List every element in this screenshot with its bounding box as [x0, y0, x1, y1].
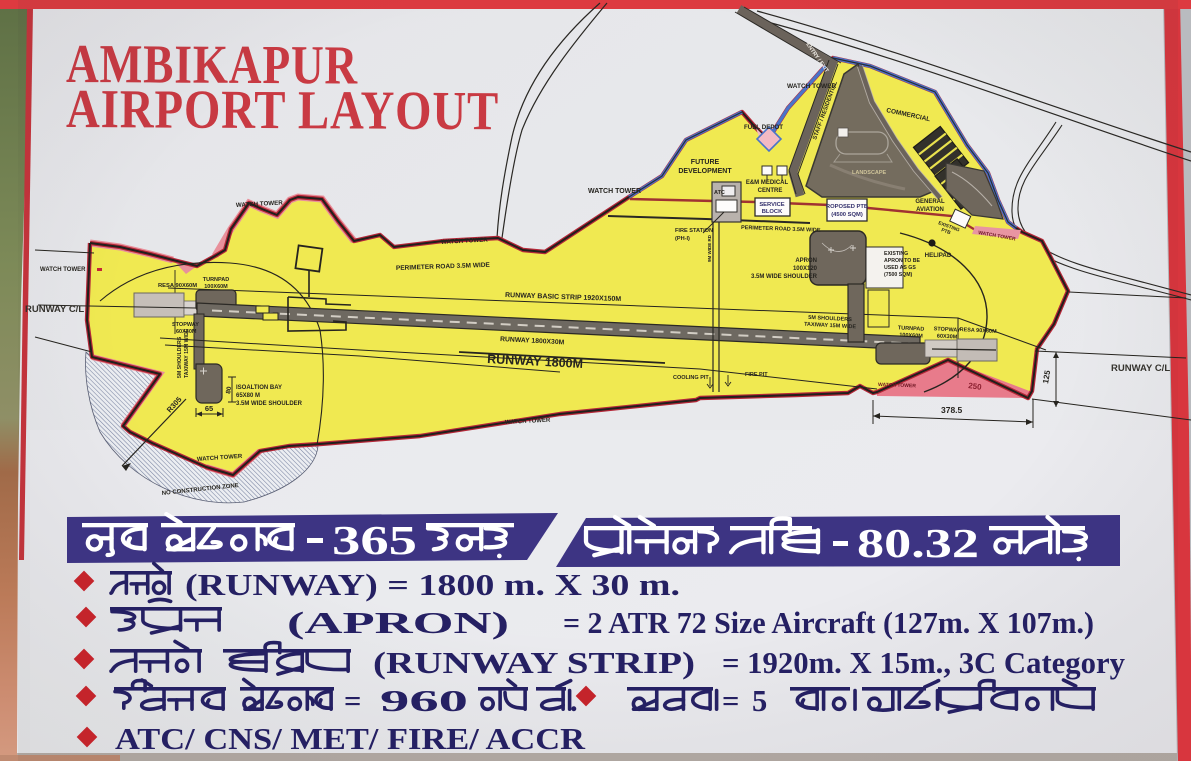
svg-text:(APRON): (APRON): [287, 606, 509, 640]
svg-text:.: .: [570, 684, 578, 718]
svg-text:960: 960: [380, 684, 468, 718]
svg-text:=: =: [344, 684, 361, 718]
svg-text:ATC/ CNS/ MET/ FIRE/ ACCR: ATC/ CNS/ MET/ FIRE/ ACCR: [115, 722, 586, 756]
svg-text:365: 365: [332, 517, 417, 563]
svg-text:5: 5: [752, 684, 767, 718]
svg-text:80.32: 80.32: [857, 520, 979, 566]
svg-text:= 1920m. X 15m., 3C Category: = 1920m. X 15m., 3C Category: [722, 646, 1125, 680]
svg-text:(RUNWAY STRIP): (RUNWAY STRIP): [373, 646, 695, 680]
svg-text:=: =: [722, 684, 739, 718]
svg-text:(RUNWAY) = 1800 m. X 30 m.: (RUNWAY) = 1800 m. X 30 m.: [185, 568, 680, 602]
svg-text:= 2 ATR 72 Size Aircraft (127m: = 2 ATR 72 Size Aircraft (127m. X 107m.): [563, 606, 1094, 640]
